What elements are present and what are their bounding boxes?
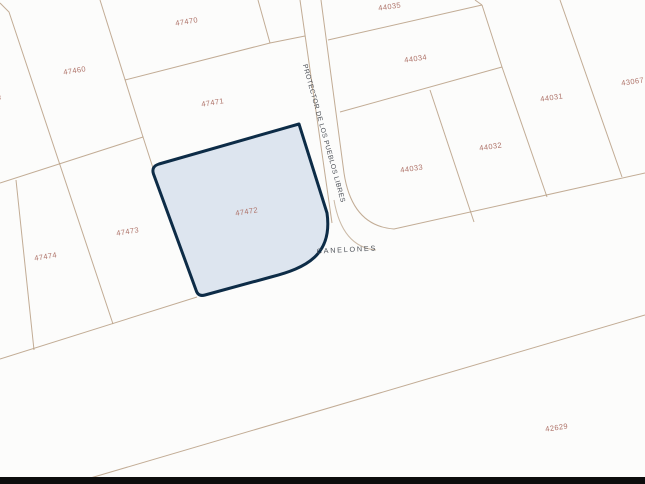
boundary-line <box>328 5 482 40</box>
boundary-line <box>125 36 305 80</box>
boundary-line <box>340 67 502 112</box>
boundary-line <box>0 137 153 183</box>
boundary-line <box>258 0 270 43</box>
boundary-line <box>100 0 143 137</box>
parcel-label: 47474 <box>34 250 58 262</box>
parcel-label: 42629 <box>545 421 569 433</box>
boundary-line <box>560 0 622 177</box>
street-edges <box>70 0 645 484</box>
parcel-label-partial: 8 <box>0 93 1 102</box>
cadastral-map-view[interactable]: 47470 47460 47471 47472 47473 47474 8 44… <box>0 0 645 484</box>
parcel-label: 43067 <box>621 75 645 87</box>
parcel-label: 44034 <box>404 52 428 64</box>
boundary-line <box>475 0 482 5</box>
parcel-label: 44032 <box>479 140 503 152</box>
boundary-line <box>502 67 547 197</box>
boundary-line <box>0 3 113 324</box>
parcel-label: 47460 <box>63 64 87 76</box>
map-canvas: 47470 47460 47471 47472 47473 47474 8 44… <box>0 0 645 484</box>
boundary-line <box>430 90 474 222</box>
boundary-line <box>16 180 34 350</box>
street-label-canelones: CANELONES <box>316 243 377 255</box>
parcel-label: 47471 <box>201 96 225 108</box>
street-junction-curve <box>334 200 376 250</box>
street-edge-canelones-south <box>70 315 645 484</box>
parcel-boundaries-right-block <box>328 0 622 222</box>
parcel-label: 47470 <box>175 15 199 27</box>
parcel-label: 44035 <box>378 0 402 12</box>
boundary-line <box>482 5 502 67</box>
parcel-label: 44033 <box>400 162 424 174</box>
bottom-letterbox-bar <box>0 477 645 484</box>
parcel-label: 44031 <box>540 91 564 103</box>
street-edge-protector-east-canelones-north <box>321 0 645 229</box>
parcel-label: 47473 <box>116 225 140 237</box>
